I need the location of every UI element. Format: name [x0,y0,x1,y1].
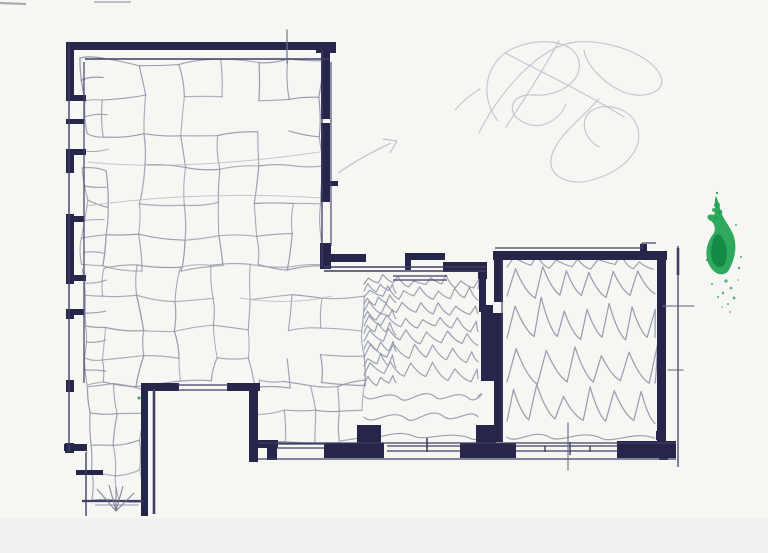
stone-edge [254,203,293,204]
stain-speckle [733,297,736,300]
wall-segment [460,443,516,458]
wall-segment [64,444,87,451]
sketch-scan-page [0,0,768,553]
stone-edge [91,445,92,470]
stain-blob [712,208,716,212]
stray-green-dot [138,397,141,400]
stone-edge [259,63,260,101]
paper-bottom-shade [0,519,768,553]
wall-segment [476,425,496,445]
stain-speckle [711,283,713,285]
wall-segment [66,380,74,392]
wall-segment [659,441,668,460]
stain-speckle [717,296,719,298]
wall-segment [357,425,381,445]
wall-segment [66,42,74,100]
wall-segment [405,253,445,260]
stain-speckle [727,303,729,305]
wall-segment [76,470,103,475]
stone-edge [218,202,219,235]
stain-speckle [735,224,737,226]
wall-segment [657,251,666,442]
stain-speckle [737,279,739,281]
stain-blob [714,202,720,208]
wall-segment [66,214,74,284]
wall-segment [656,431,665,440]
stain-speckle [729,311,731,313]
wall-segment [324,443,384,458]
stain-speckle [706,259,708,261]
floor-plan-sketch [0,0,768,553]
scan-edge-mark [0,3,26,4]
stain-speckle [724,279,727,282]
stain-speckle [721,306,723,308]
wall-segment [323,254,366,262]
stain-blob [716,192,718,194]
stain-speckle [740,256,742,258]
wall-segment [66,42,336,50]
stain-speckle [738,267,740,269]
stain-blob [718,210,723,215]
wall-segment [249,383,258,462]
stain-speckle [722,292,724,294]
stain-speckle [730,287,733,290]
stain-blob [714,216,718,220]
wall-segment [141,383,148,516]
